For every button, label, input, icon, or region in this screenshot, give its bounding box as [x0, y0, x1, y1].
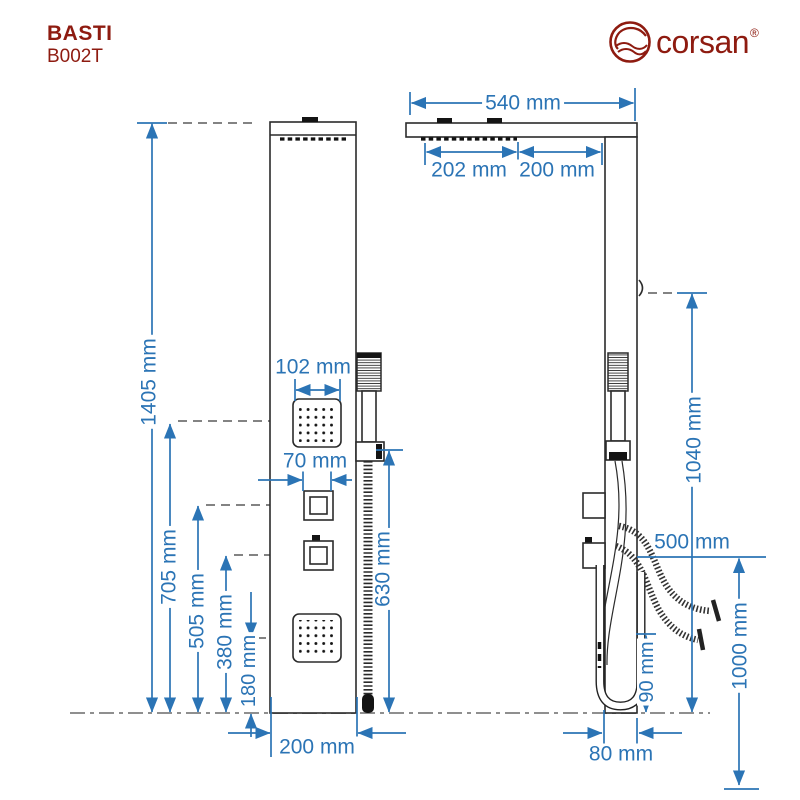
dim-label-head-to-panel: 200 mm — [516, 160, 598, 181]
head-arm — [406, 123, 637, 137]
dim-label-valve-width: 70 mm — [280, 451, 350, 472]
side-view-panel — [406, 118, 719, 713]
dim-label-bottom-jet-height: 180 mm — [239, 632, 259, 710]
dim-label-head-nozzle-depth: 202 mm — [428, 160, 510, 181]
dim-label-upper-valve-height: 505 mm — [187, 570, 208, 652]
technical-drawing — [0, 0, 800, 800]
dim-label-top-jet-height: 705 mm — [159, 526, 180, 608]
dim-label-panel-width: 200 mm — [276, 737, 358, 758]
dim-label-hand-shower-height: 630 mm — [373, 528, 394, 610]
front-view-panel — [270, 117, 384, 713]
dim-label-panel-depth: 80 mm — [586, 744, 656, 765]
wall-hook — [639, 280, 643, 296]
dim-label-mount-height: 1000 mm — [730, 599, 751, 693]
valve-upper — [304, 491, 333, 520]
top-bracket — [302, 117, 318, 122]
brand-logo: corsan ® — [608, 20, 759, 64]
dim-label-total-height: 1405 mm — [139, 335, 160, 429]
knob-upper-side — [583, 493, 605, 518]
model-code: B002T — [47, 46, 103, 68]
dim-label-head-depth: 540 mm — [482, 93, 564, 114]
shower-panel-dimension-diagram: BASTI B002T corsan ® — [0, 0, 800, 800]
registered-mark: ® — [750, 26, 759, 40]
knob-lower-side — [583, 543, 605, 568]
dim-label-hose-clearance: 90 mm — [637, 638, 657, 705]
dim-label-jet-width: 102 mm — [272, 357, 354, 378]
wave-circle-icon — [608, 20, 652, 64]
dim-label-spout-reach: 500 mm — [651, 532, 733, 553]
valve-lower — [304, 541, 333, 570]
dim-label-hook-height: 1040 mm — [684, 393, 705, 487]
brand-name: corsan — [656, 26, 749, 58]
dim-label-lower-valve-height: 380 mm — [215, 591, 236, 673]
model-name: BASTI — [47, 22, 113, 46]
dimension-lines — [137, 88, 766, 789]
